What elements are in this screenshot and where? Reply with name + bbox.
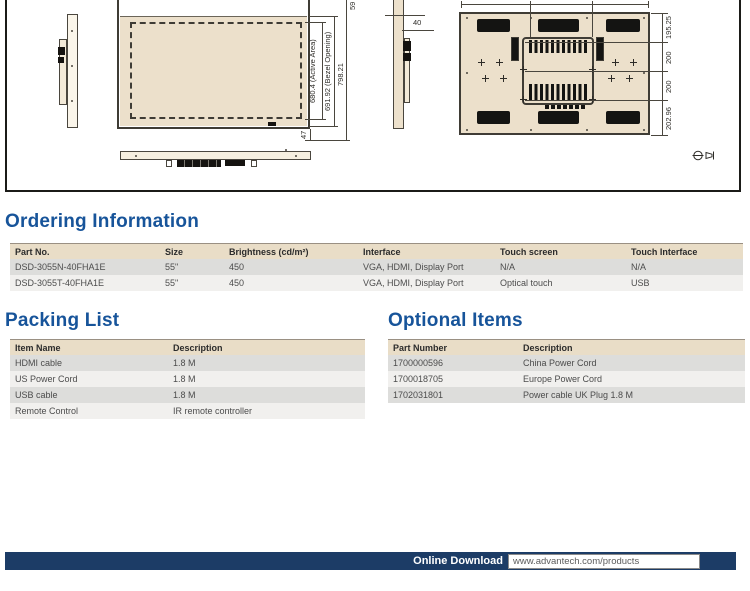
vent-slot <box>538 19 579 32</box>
cell: 1.8 M <box>168 358 365 368</box>
table-row: US Power Cord 1.8 M <box>10 371 365 387</box>
cell: N/A <box>626 262 743 272</box>
screw-dot <box>466 72 468 74</box>
cell: Power cable UK Plug 1.8 M <box>518 390 745 400</box>
dim-line <box>525 71 668 72</box>
cell: 1700018705 <box>388 374 518 384</box>
dim-line <box>530 5 531 37</box>
dim-line <box>525 42 668 43</box>
cell: N/A <box>495 262 626 272</box>
bottom-io-module <box>225 160 245 166</box>
bottom-view-strip <box>120 151 311 160</box>
cell: 1702031801 <box>388 390 518 400</box>
table-row: 1700000596 China Power Cord <box>388 355 745 371</box>
dim-line <box>305 140 350 141</box>
connector-strip <box>545 105 587 109</box>
screw-dot <box>466 129 468 131</box>
screw-dot <box>71 65 73 67</box>
cell: 450 <box>224 278 358 288</box>
screw-dot <box>466 17 468 19</box>
cell: VGA, HDMI, Display Port <box>358 262 495 272</box>
dim-label-top-partial: 59 <box>349 0 357 12</box>
dim-line <box>334 16 335 127</box>
table-row: 1700018705 Europe Power Cord <box>388 371 745 387</box>
cell: USB <box>626 278 743 288</box>
bottom-io-module <box>177 160 221 167</box>
dim-line <box>402 30 434 31</box>
column-header: Item Name <box>10 343 168 353</box>
handle <box>596 37 604 61</box>
cell: 450 <box>224 262 358 272</box>
dim-line <box>651 135 668 136</box>
dim-line <box>662 13 663 135</box>
vent-slot <box>606 19 640 32</box>
vent-slot <box>477 111 510 124</box>
side-view-left-connector <box>58 47 65 55</box>
screw-dot <box>643 17 645 19</box>
section-title-optional: Optional Items <box>388 310 523 332</box>
vesa-cross-mark <box>608 75 615 82</box>
optional-table: Part Number Description 1700000596 China… <box>388 339 745 403</box>
column-header: Interface <box>358 247 495 257</box>
bottom-foot <box>166 160 172 167</box>
vesa-cross-mark <box>496 59 503 66</box>
cell: US Power Cord <box>10 374 168 384</box>
table-row: DSD-3055T-40FHA1E 55" 450 VGA, HDMI, Dis… <box>10 275 743 291</box>
screw-dot <box>71 30 73 32</box>
dim-line <box>310 129 311 140</box>
cell: HDMI cable <box>10 358 168 368</box>
screw-dot <box>285 149 287 151</box>
cell: USB cable <box>10 390 168 400</box>
vesa-cross-mark <box>626 75 633 82</box>
vent-grille <box>529 84 587 100</box>
vent-slot <box>606 111 640 124</box>
ordering-table-header: Part No. Size Brightness (cd/m²) Interfa… <box>10 243 743 259</box>
screw-dot <box>586 129 588 131</box>
column-header: Touch Interface <box>626 247 743 257</box>
dim-line <box>385 15 425 16</box>
vesa-cross-mark <box>500 75 507 82</box>
dim-label-bezel-opening: 691.92 (Bezel Opening) <box>324 17 332 126</box>
cell: 1.8 M <box>168 374 365 384</box>
screw-dot <box>586 17 588 19</box>
dim-label-depth: 40 <box>413 19 421 27</box>
column-header: Description <box>518 343 745 353</box>
screw-dot <box>135 155 137 157</box>
online-download-label: Online Download <box>413 555 503 567</box>
screw-dot <box>530 129 532 131</box>
column-header: Size <box>160 247 224 257</box>
dim-label-back-bottom: 202.96 <box>665 102 673 135</box>
footer-download-bar: Online Download www.advantech.com/produc… <box>5 552 736 570</box>
third-angle-projection-icon <box>692 149 718 162</box>
screw-dot <box>295 155 297 157</box>
ordering-table: Part No. Size Brightness (cd/m²) Interfa… <box>10 243 743 291</box>
table-row: HDMI cable 1.8 M <box>10 355 365 371</box>
dim-line <box>525 100 668 101</box>
cell: Remote Control <box>10 406 168 416</box>
cell: VGA, HDMI, Display Port <box>358 278 495 288</box>
vesa-cross-mark <box>612 59 619 66</box>
bottom-foot <box>251 160 257 167</box>
cell: DSD-3055T-40FHA1E <box>10 278 160 288</box>
packing-table-header: Item Name Description <box>10 339 365 355</box>
section-title-ordering: Ordering Information <box>5 211 199 233</box>
cell: China Power Cord <box>518 358 745 368</box>
dim-tick <box>648 1 649 8</box>
front-view-active-area-boundary <box>130 22 302 119</box>
side-view-right-connector <box>403 53 411 61</box>
side-view-right-panel <box>393 0 404 129</box>
dim-label-back-mid1: 200 <box>665 44 673 71</box>
screw-dot <box>643 72 645 74</box>
screw-dot <box>71 100 73 102</box>
cell: DSD-3055N-40FHA1E <box>10 262 160 272</box>
vent-slot <box>477 19 510 32</box>
vesa-cross-mark <box>478 59 485 66</box>
cell: 55" <box>160 262 224 272</box>
download-url-link[interactable]: www.advantech.com/products <box>508 554 700 569</box>
table-row: DSD-3055N-40FHA1E 55" 450 VGA, HDMI, Dis… <box>10 259 743 275</box>
handle <box>511 37 519 61</box>
dim-line <box>592 5 593 37</box>
column-header: Part No. <box>10 247 160 257</box>
cell: IR remote controller <box>168 406 365 416</box>
table-row: USB cable 1.8 M <box>10 387 365 403</box>
column-header: Part Number <box>388 343 518 353</box>
column-header: Brightness (cd/m²) <box>224 247 358 257</box>
cell: 1700000596 <box>388 358 518 368</box>
vesa-cross-mark <box>482 75 489 82</box>
cell: Europe Power Cord <box>518 374 745 384</box>
column-header: Description <box>168 343 365 353</box>
section-title-packing: Packing List <box>5 310 119 332</box>
screw-dot <box>643 129 645 131</box>
cell: 55" <box>160 278 224 288</box>
dim-line <box>461 4 649 5</box>
table-row: Remote Control IR remote controller <box>10 403 365 419</box>
side-view-left-connector <box>58 57 64 63</box>
column-header: Touch screen <box>495 247 626 257</box>
optional-table-header: Part Number Description <box>388 339 745 355</box>
packing-table: Item Name Description HDMI cable 1.8 M U… <box>10 339 365 419</box>
dim-label-active-area: 680.4 (Active Area) <box>309 24 317 118</box>
cell: Optical touch <box>495 278 626 288</box>
ir-sensor-mark <box>268 122 276 126</box>
dim-label-overall-height: 798.21 <box>337 30 345 120</box>
table-row: 1702031801 Power cable UK Plug 1.8 M <box>388 387 745 403</box>
dim-tick <box>461 1 462 8</box>
vesa-cross-mark <box>630 59 637 66</box>
vent-slot <box>538 111 579 124</box>
side-view-right-connector <box>403 41 411 51</box>
datasheet-page: 680.4 (Active Area) 691.92 (Bezel Openin… <box>0 0 750 591</box>
cell: 1.8 M <box>168 390 365 400</box>
dim-label-back-mid2: 200 <box>665 73 673 100</box>
dim-line <box>346 0 347 140</box>
dim-label-bottom-offset: 47 <box>300 128 308 141</box>
dim-label-back-top: 195.25 <box>665 14 673 42</box>
